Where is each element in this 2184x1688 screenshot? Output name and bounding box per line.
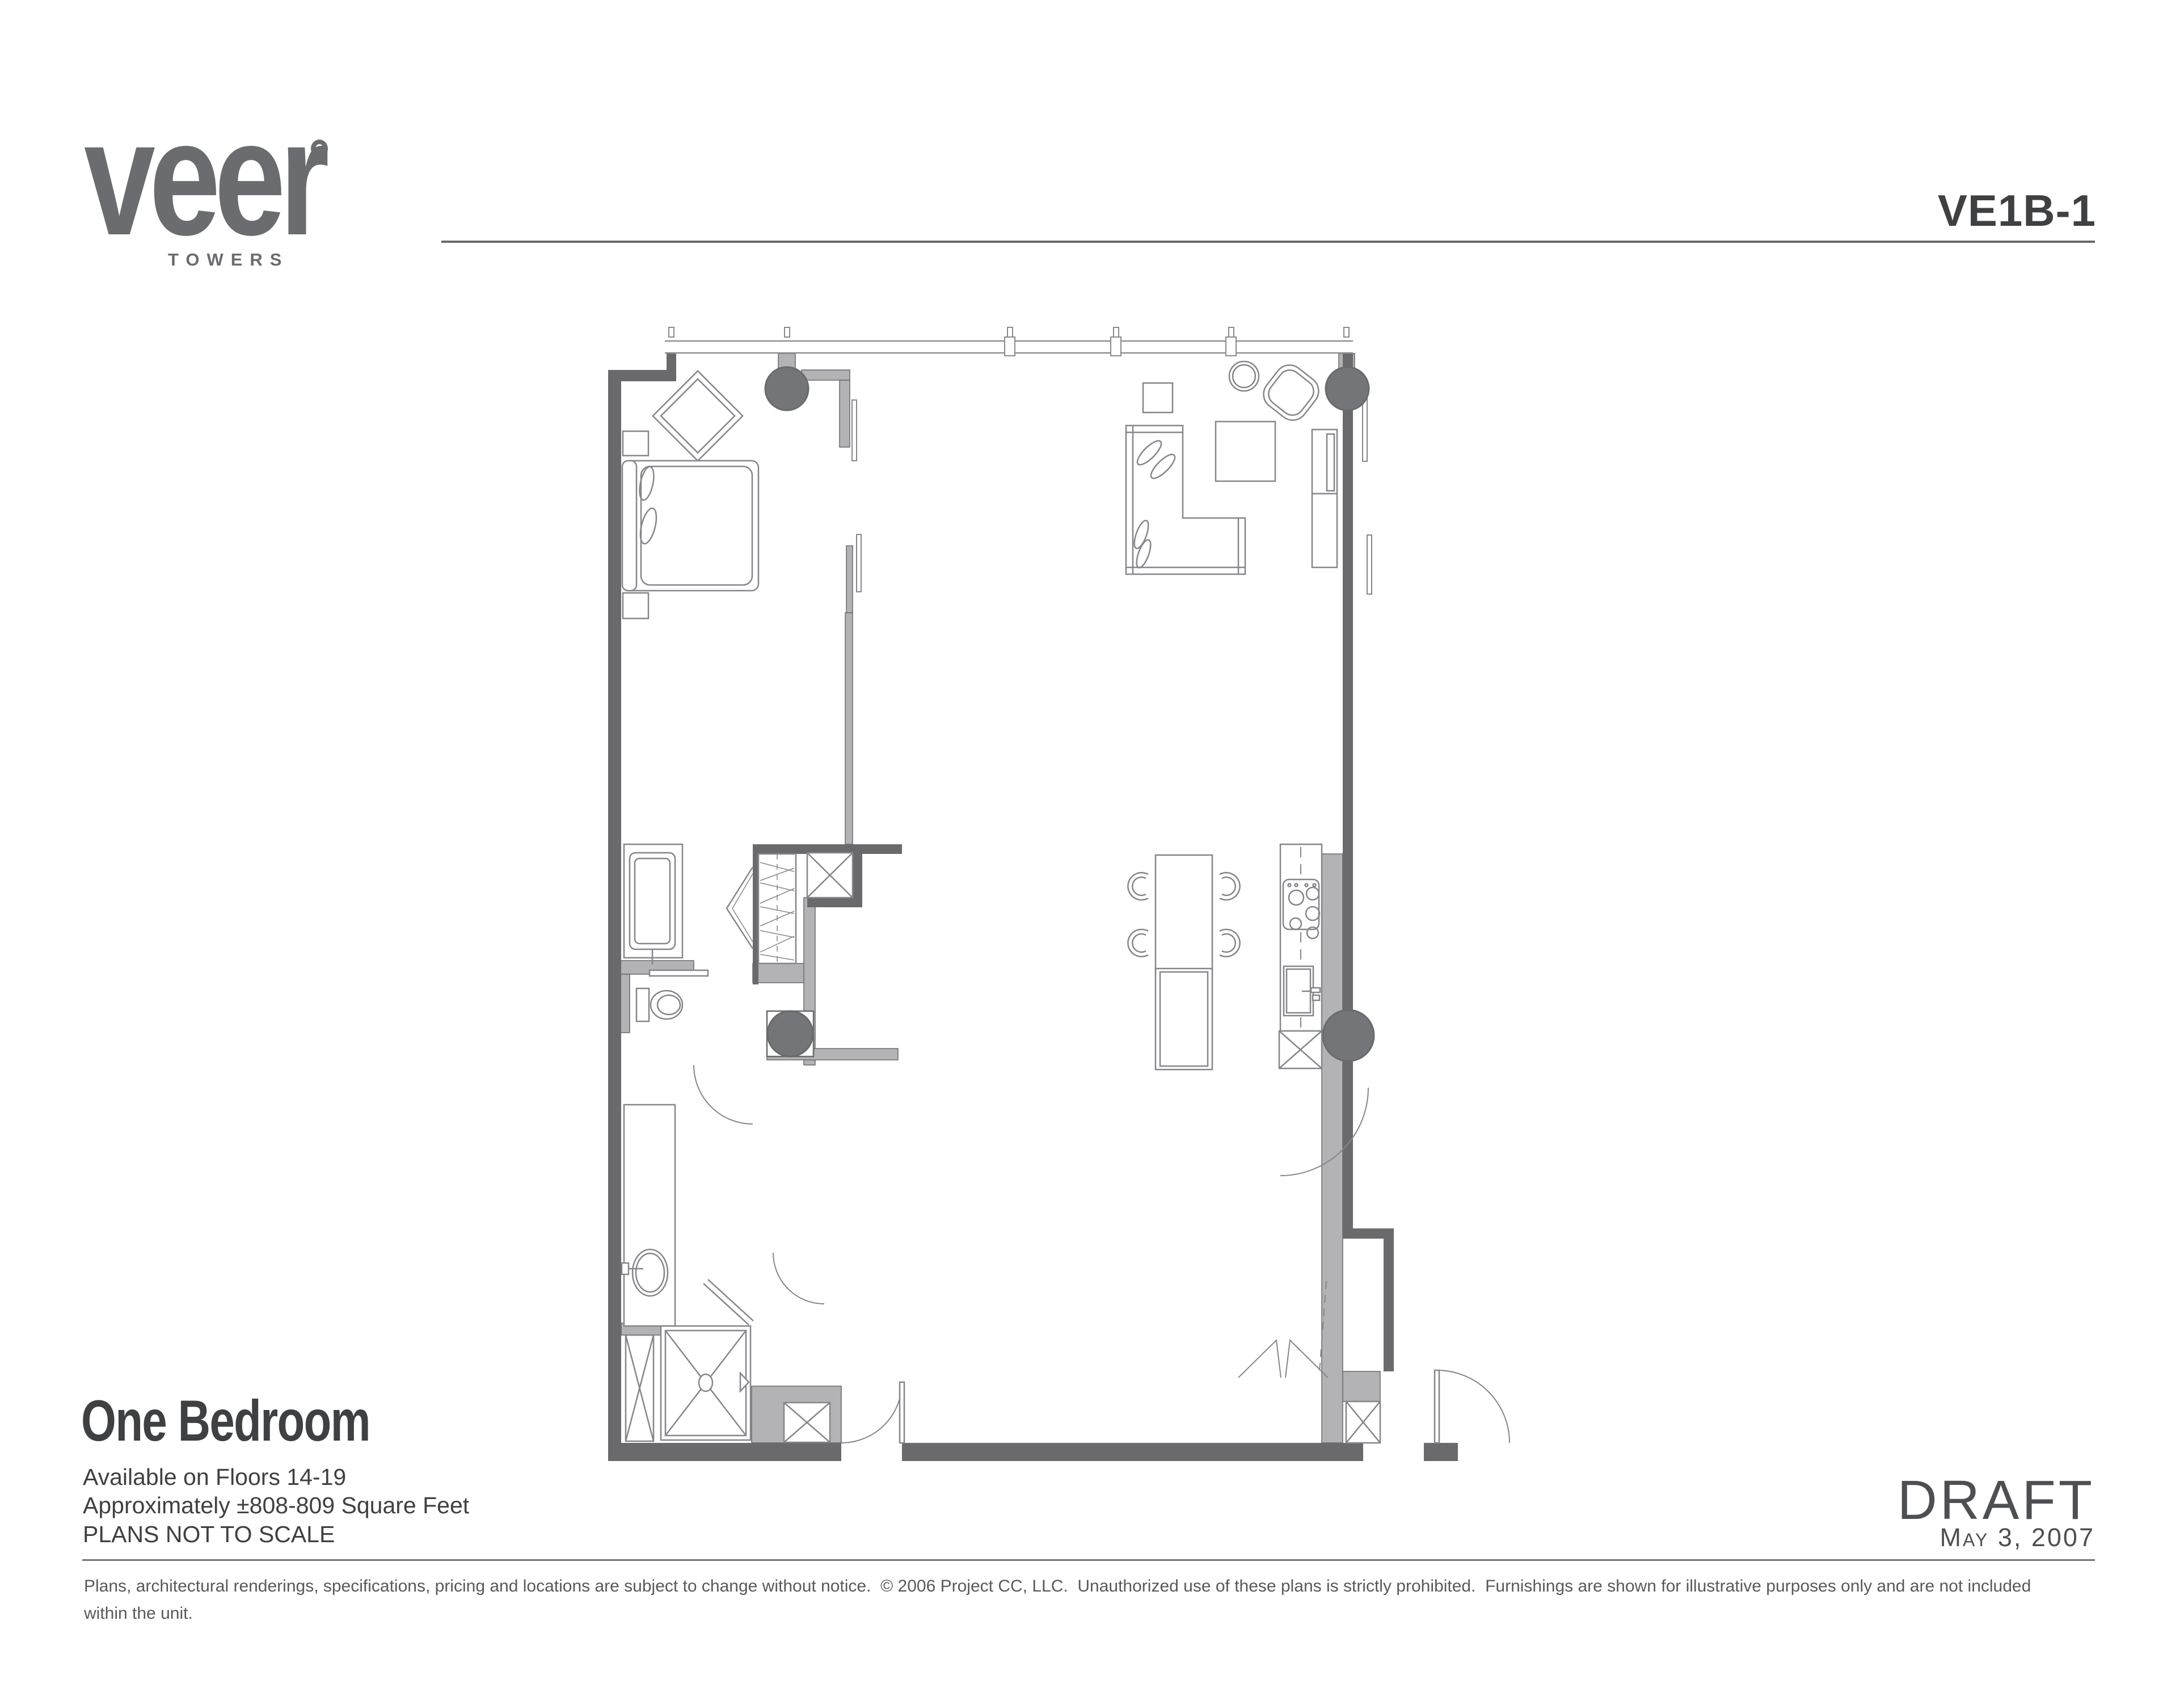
sectional-sofa bbox=[1126, 426, 1245, 574]
window-wall bbox=[665, 327, 1353, 356]
washer-dryer bbox=[626, 1335, 653, 1441]
toilet bbox=[636, 988, 682, 1021]
side-table bbox=[1143, 383, 1173, 412]
dining-table bbox=[1156, 855, 1212, 974]
disclaimer-text: Plans, architectural renderings, specifi… bbox=[84, 1573, 2041, 1627]
island bbox=[1156, 969, 1212, 1070]
logo: veer bbox=[84, 95, 323, 260]
closet bbox=[727, 854, 796, 963]
draft-date: May 3, 2007 bbox=[1641, 1523, 2095, 1552]
availability-text: Available on Floors 14-19 bbox=[83, 1463, 469, 1491]
lounge-chair bbox=[1258, 359, 1325, 426]
media-cabinet bbox=[1312, 430, 1337, 567]
page-title: One Bedroom bbox=[81, 1388, 370, 1454]
dishwasher bbox=[1279, 1031, 1322, 1068]
towel-shelf bbox=[650, 970, 708, 976]
footer-rule bbox=[82, 1559, 2095, 1561]
bathtub bbox=[624, 844, 682, 965]
logo-subtitle: TOWERS bbox=[168, 250, 289, 270]
coffee-table bbox=[1216, 422, 1275, 481]
scale-note: PLANS NOT TO SCALE bbox=[83, 1520, 469, 1548]
cooktop bbox=[1283, 879, 1319, 938]
accent-chair bbox=[653, 371, 743, 461]
plan-meta: Available on Floors 14-19 Approximately … bbox=[83, 1463, 469, 1548]
vanity-sink bbox=[622, 1105, 675, 1326]
floorplan-sheet: { "header": { "logo_text": "veer", "logo… bbox=[0, 0, 2184, 1688]
logo-degree-icon bbox=[311, 140, 328, 158]
area-text: Approximately ±808-809 Square Feet bbox=[83, 1491, 469, 1519]
bed bbox=[622, 461, 758, 591]
round-table bbox=[1229, 361, 1259, 391]
plan-code: VE1B-1 bbox=[1759, 185, 2096, 237]
sliding-panels bbox=[852, 399, 1372, 594]
header-rule bbox=[441, 241, 2095, 243]
